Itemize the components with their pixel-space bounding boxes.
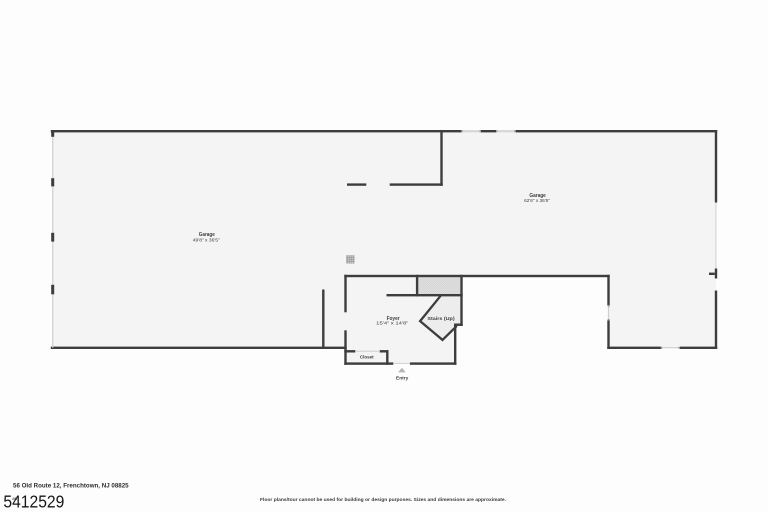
svg-text:Stairs (Up): Stairs (Up) — [427, 316, 455, 322]
svg-text:Floor plans/tour cannot be use: Floor plans/tour cannot be used for buil… — [260, 497, 506, 502]
svg-text:62'6" x 36'5": 62'6" x 36'5" — [524, 198, 550, 203]
svg-text:Entry: Entry — [396, 376, 409, 382]
svg-text:56 Old Route 12, Frenchtown, N: 56 Old Route 12, Frenchtown, NJ 08825 — [13, 482, 129, 489]
svg-text:49'8" x 36'5": 49'8" x 36'5" — [193, 238, 220, 243]
svg-text:Closet: Closet — [360, 354, 374, 360]
svg-text:an: an — [12, 496, 17, 501]
svg-text:15'4" x 14'8": 15'4" x 14'8" — [376, 321, 409, 326]
svg-text:5412529: 5412529 — [3, 491, 64, 511]
